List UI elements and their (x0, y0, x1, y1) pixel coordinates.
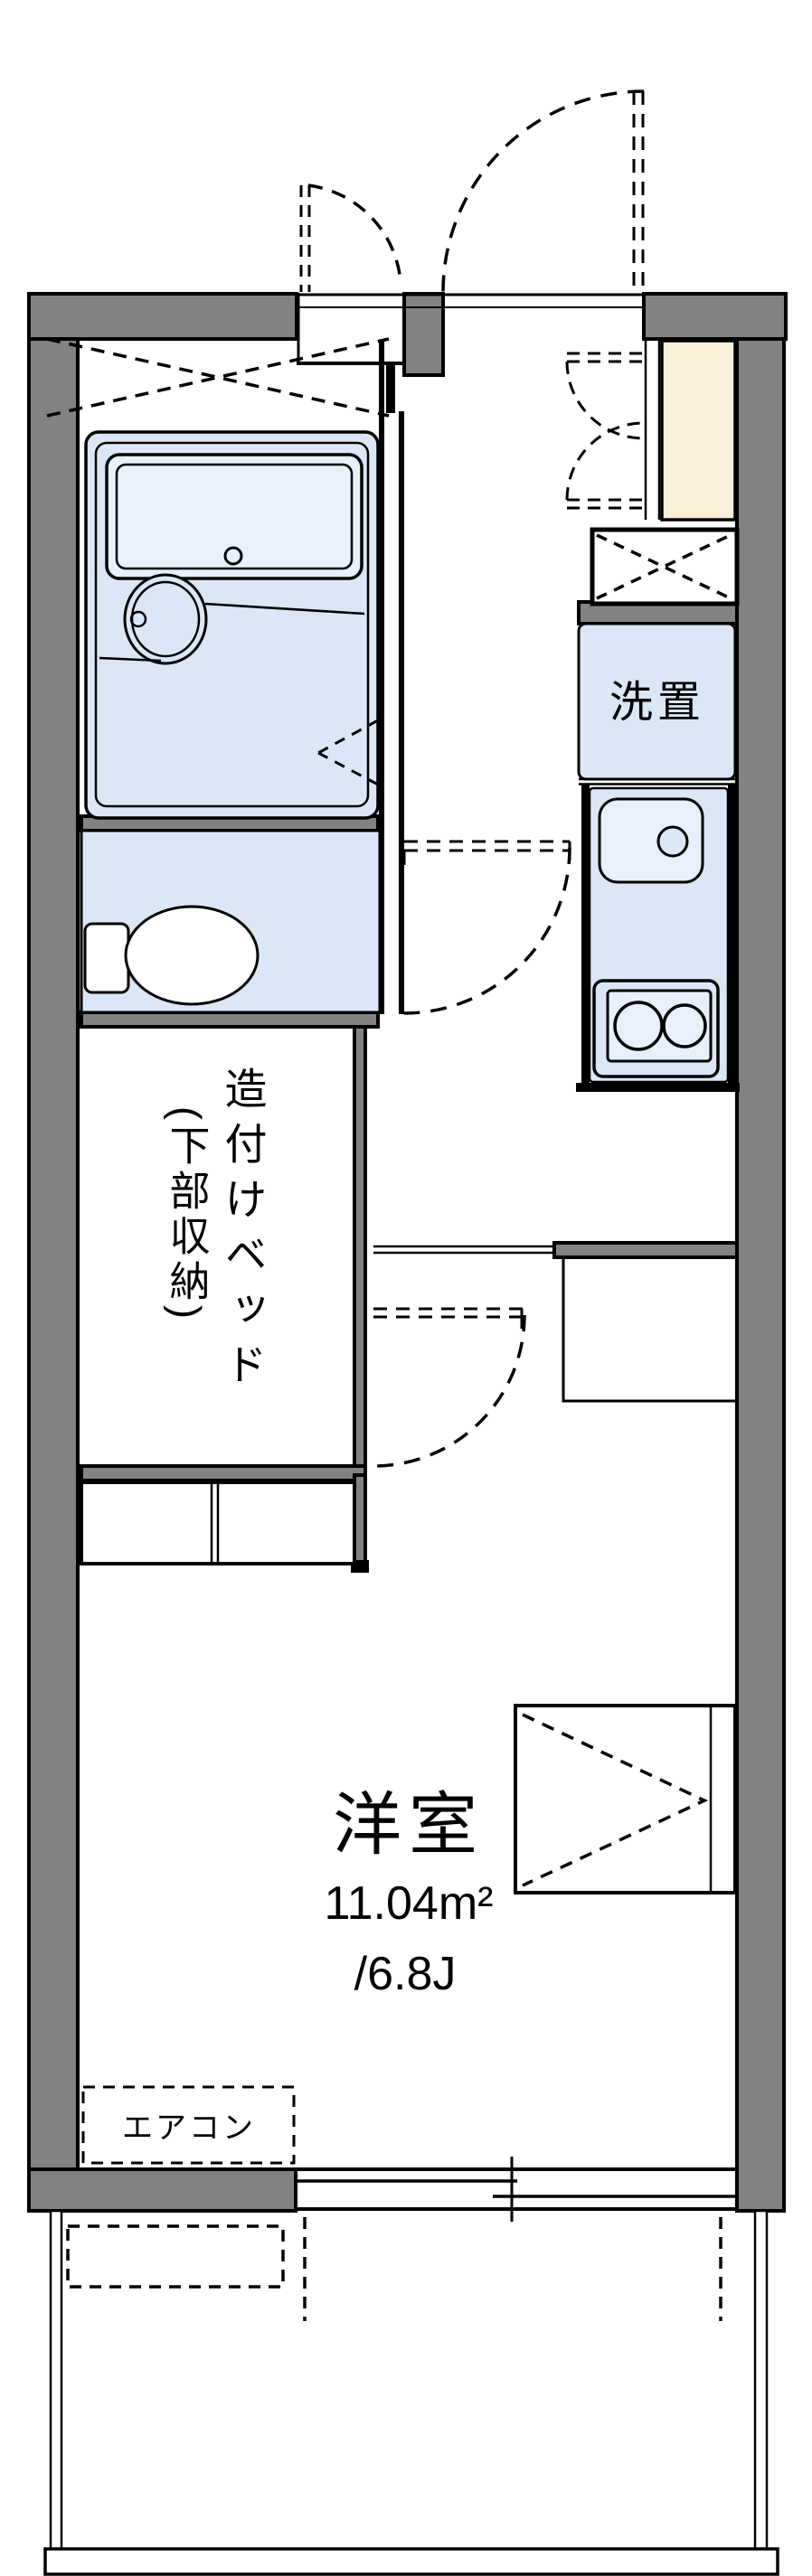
room-area-jo-label: /6.8J (354, 1947, 457, 2001)
meterbox-door (301, 185, 401, 292)
balcony-wall-right (755, 2211, 767, 2551)
aircon-label: エアコン (122, 2103, 256, 2148)
balcony-wall-left (51, 2211, 61, 2551)
wall-top-right (644, 294, 786, 339)
ceiling-access-cross (47, 339, 389, 416)
wall-hall-partition (382, 341, 401, 1014)
wall-kitchen-stub (554, 1243, 737, 1257)
wash-basin (125, 575, 206, 663)
wall-bed-right (354, 1027, 365, 1475)
shoe-cabinet-doors (567, 353, 644, 508)
room-door (373, 1309, 524, 1466)
balcony (45, 2211, 778, 2574)
room-threshold (373, 1246, 554, 1253)
balcony-equipment-area (68, 2226, 283, 2287)
wall-bed-bottom (81, 1466, 365, 1481)
upper-shelf-box (592, 530, 737, 604)
toilet-bowl (126, 907, 258, 1004)
stove-top (608, 991, 711, 1061)
fridge-space (563, 1258, 737, 1401)
sliding-window (296, 2157, 737, 2222)
entrance-area (567, 341, 737, 604)
room-name-label: 洋室 (333, 1769, 485, 1868)
wall-top-left (29, 294, 297, 339)
shoe-cabinet (662, 341, 735, 520)
closet (515, 1706, 735, 1893)
wall-toilet-bed (81, 1012, 378, 1027)
kitchen-unit (576, 785, 740, 1092)
wall-entry-pillar (404, 294, 443, 375)
balcony-edge (45, 2549, 778, 2574)
wall-niche-stub (386, 362, 395, 413)
toilet-room (81, 831, 380, 1012)
bathroom-unit (86, 432, 378, 818)
sink-faucet (658, 827, 687, 856)
floor-plan-drawing (0, 0, 812, 2576)
built-in-bed-label: 造付けベッド (212, 1067, 274, 1397)
wall-bottom-left (29, 2169, 296, 2211)
wall-right (737, 339, 784, 2211)
toilet-tank (85, 924, 128, 992)
bed-storage-label: (下部収納) (157, 1106, 216, 1323)
bathtub (107, 455, 362, 578)
room-area-sqm-label: 11.04m² (325, 1876, 494, 1931)
bed-cabinet-row (81, 1482, 354, 1564)
toilet-door (404, 841, 570, 1013)
floor-plan: 洗置 造付けベッド (下部収納) 洋室 11.04m² /6.8J エアコン (0, 0, 812, 2576)
wall-left (29, 294, 78, 2211)
entrance-door (443, 91, 644, 292)
washer-label: 洗置 (609, 666, 705, 729)
